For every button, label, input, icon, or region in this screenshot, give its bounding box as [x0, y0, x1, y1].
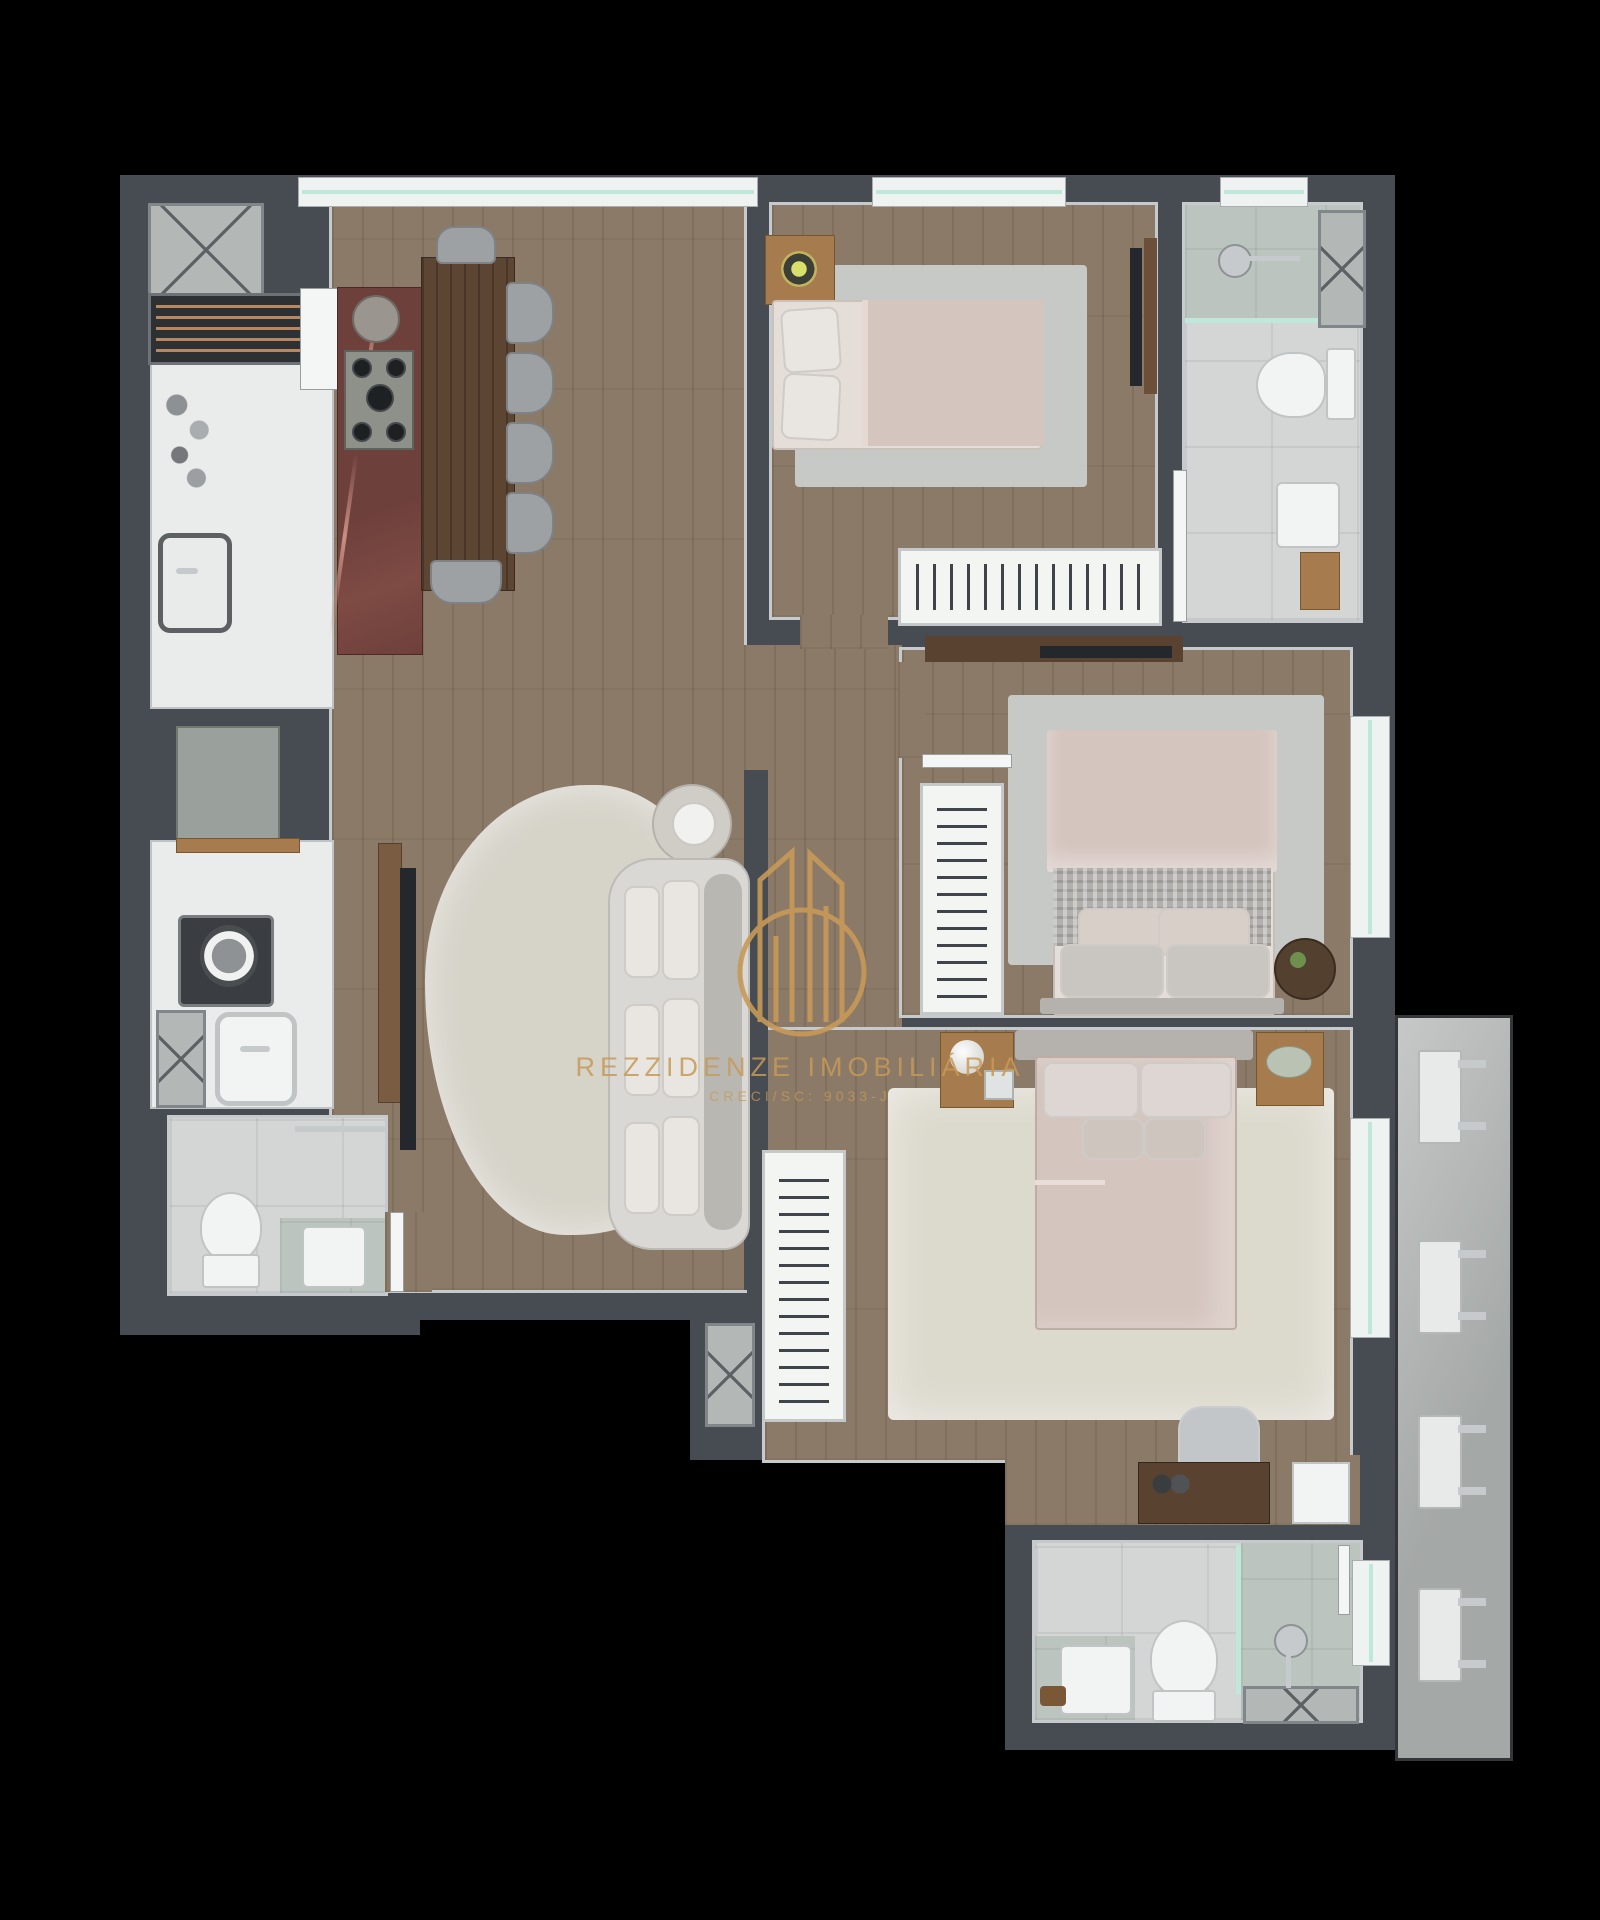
shower-stem: [1286, 1652, 1291, 1688]
ac-bracket: [1458, 1598, 1486, 1606]
floor-plan-render: REZZIDENZE IMOBILIÁRIA CRECI/SC: 9033-J: [0, 0, 1600, 1920]
side-table-plant: [1290, 952, 1306, 968]
kitchen-sink: [158, 533, 232, 633]
bedroom1-wardrobe: [898, 548, 1162, 626]
window-glass: [1368, 720, 1372, 934]
dining-chair: [506, 282, 554, 344]
bathroom2-sink: [1060, 1645, 1132, 1715]
window-bathroom1-top: [1220, 177, 1308, 207]
kitchen-utensils: [160, 390, 216, 490]
bathroom2-stool: [1040, 1686, 1066, 1706]
towel-bar: [295, 1126, 385, 1132]
bedroom2-tv-screen: [1040, 646, 1172, 658]
entry-cabinet: [176, 726, 280, 840]
bed-pillow: [1060, 944, 1164, 998]
closet-hangers: [937, 800, 987, 999]
kitchen-faucet: [176, 568, 198, 574]
powder-room-door: [390, 1212, 404, 1292]
window-glass: [1224, 190, 1304, 194]
cooktop: [344, 350, 414, 450]
bedroom2-headboard: [1040, 998, 1284, 1014]
dining-chair: [430, 560, 502, 604]
desk-mat: [1292, 1462, 1350, 1524]
entry-shelf: [176, 838, 300, 853]
bedroom3-closet: [762, 1150, 846, 1422]
bedroom2-door-opening: [898, 662, 926, 758]
bed-fold-line: [1035, 1180, 1105, 1185]
island-basin: [352, 295, 400, 343]
ac-bracket: [1458, 1660, 1486, 1668]
bathroom1-door: [1173, 470, 1187, 622]
window-bedroom1-top: [872, 177, 1066, 207]
ac-condenser-unit: [1418, 1588, 1462, 1682]
toilet-bowl: [200, 1192, 262, 1262]
dining-chair: [506, 492, 554, 554]
window-glass: [1368, 1122, 1372, 1334]
bed-pillow: [1082, 1118, 1144, 1160]
ac-bracket: [1458, 1122, 1486, 1130]
technical-shaft: [148, 203, 264, 297]
window-bedroom3-right: [1350, 1118, 1390, 1338]
shower-head: [1218, 244, 1252, 278]
bed-pillow: [1166, 944, 1270, 998]
washer-drum: [200, 925, 258, 987]
bedroom2-door: [922, 754, 1012, 768]
bedroom1-blanket: [862, 300, 1044, 446]
burner: [386, 358, 406, 378]
window-bathroom2-right: [1352, 1560, 1390, 1666]
window-glass: [1369, 1564, 1373, 1662]
bed-pillow: [780, 306, 842, 374]
window-living-top: [298, 177, 758, 207]
sofa-cushion: [624, 1122, 660, 1214]
burner: [352, 358, 372, 378]
rezzidenze-logo-icon: [692, 840, 912, 1042]
ac-bracket: [1458, 1425, 1486, 1433]
bathroom1-sink: [1276, 482, 1340, 548]
toilet-tank: [1152, 1690, 1216, 1722]
burner: [386, 422, 406, 442]
ac-condenser-unit: [1418, 1415, 1462, 1509]
bedroom1-tv-panel: [1144, 238, 1157, 394]
bedroom1-door-opening: [800, 615, 888, 649]
ac-bracket: [1458, 1487, 1486, 1495]
window-bedroom2-right: [1350, 716, 1390, 938]
toilet-tank: [202, 1254, 260, 1288]
bathroom2-shower-glass: [1236, 1545, 1241, 1695]
ac-bracket: [1458, 1312, 1486, 1320]
towel-bar: [1032, 1548, 1038, 1634]
dining-chair: [506, 352, 554, 414]
bedroom2-side-table: [1274, 938, 1336, 1000]
laundry-faucet: [240, 1046, 270, 1052]
dining-chair: [436, 226, 496, 264]
bedroom1-tv-screen: [1130, 248, 1142, 386]
sofa-cushion: [624, 886, 660, 978]
ac-bracket: [1458, 1060, 1486, 1068]
bed-pillow: [780, 373, 841, 442]
bed-pillow: [1144, 1118, 1206, 1160]
bathroom1-tray: [1300, 552, 1340, 610]
burner: [352, 422, 372, 442]
bedroom2-sheet: [1047, 730, 1277, 872]
window-glass: [876, 190, 1062, 194]
burner: [366, 384, 394, 412]
shower-arm: [1246, 256, 1300, 261]
watermark-subtitle: CRECI/SC: 9033-J: [360, 1088, 1240, 1104]
watermark-title: REZZIDENZE IMOBILIÁRIA: [360, 1052, 1240, 1083]
toilet-bowl: [1256, 352, 1326, 418]
laundry-tub: [215, 1012, 297, 1106]
bedroom1-lamp: [781, 251, 817, 287]
closet-hangers: [779, 1169, 829, 1403]
window-glass: [302, 190, 754, 194]
bedroom2-closet: [920, 783, 1004, 1015]
wardrobe-hangers: [916, 564, 1143, 610]
powder-sink: [302, 1226, 366, 1288]
ac-condenser-unit: [1418, 1050, 1462, 1144]
technical-shaft: [156, 1010, 206, 1108]
nightstand-tray: [1266, 1046, 1312, 1078]
toilet-tank: [1326, 348, 1356, 420]
dining-table: [421, 257, 515, 591]
desk-accessories: [1150, 1472, 1190, 1496]
toilet-bowl: [1150, 1620, 1218, 1698]
sofa-cushion: [662, 1116, 700, 1216]
ac-bracket: [1458, 1250, 1486, 1258]
dining-chair: [506, 422, 554, 484]
living-tv-screen: [400, 868, 416, 1150]
ac-condenser-unit: [1418, 1240, 1462, 1334]
shower-drain-grate: [1243, 1686, 1359, 1724]
bathroom2-door: [1338, 1545, 1350, 1615]
shower-head: [1274, 1624, 1308, 1658]
technical-shaft: [705, 1323, 755, 1427]
technical-shaft: [1318, 210, 1366, 328]
